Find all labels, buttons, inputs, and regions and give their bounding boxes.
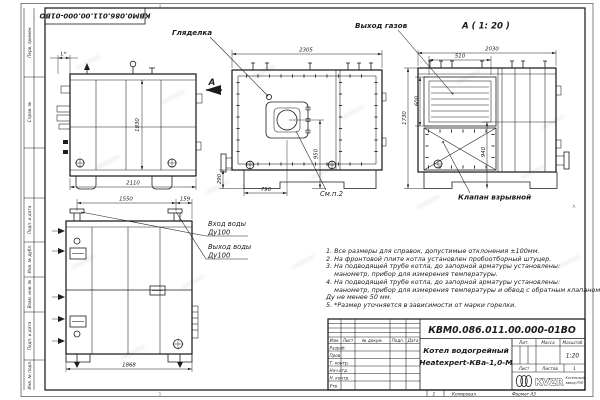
footer-copied: Копировал <box>452 392 476 397</box>
footer-num: 1 <box>433 392 436 397</box>
designation-stamp-text: КВМ0.086.011.00.000-01ВО <box>39 12 150 20</box>
tb-scale-label: Масштаб <box>563 340 583 345</box>
rear-view-body <box>66 221 192 354</box>
tb-product-name-1: Котел водогрейный <box>423 346 509 355</box>
margin-field-inv-podl: Инв. № подл. <box>27 361 32 390</box>
tb-col-data: Дата <box>407 338 419 343</box>
margin-field-vzam-inv: Взам. инв. № <box>27 279 32 308</box>
gas-outlet-label: Выход газов <box>355 21 408 30</box>
water-outlet-stub <box>168 209 182 221</box>
footer-strip: 1 Копировал Формат А3 <box>427 390 536 397</box>
zone-mark-right: А <box>573 204 576 210</box>
tb-sheet-label: Лист <box>518 366 530 371</box>
margin-field-podp-data-2: Подп. и дата <box>27 321 32 350</box>
tb-sheets-label: Листов <box>541 366 558 371</box>
view-a-arrow-label: А <box>208 78 216 88</box>
dim-flue-width: 510 <box>455 54 466 60</box>
footer-format: Формат А3 <box>512 392 536 397</box>
title-block: Изм. Лист № докум. Подп. Дата Разраб. Пр… <box>328 319 586 390</box>
dim-stub-offset: 159 <box>180 197 191 203</box>
tb-row-tkontr: Т. контр. <box>330 361 349 366</box>
tb-col-izm: Изм. <box>330 338 340 343</box>
tb-col-list: Лист <box>342 338 354 343</box>
tb-sheets-value: 1 <box>573 366 576 371</box>
water-inlet-dn: Ду100 <box>207 229 230 237</box>
kvzr-logo-text: KVZR <box>535 378 564 388</box>
dim-front-790: 790 <box>261 187 272 193</box>
kvzr-logo: KVZR Котельный завод РЭП <box>516 376 585 389</box>
kvzr-logo-sub-1: Котельный <box>566 376 586 380</box>
safety-valve-icon <box>130 61 136 67</box>
tb-row-prov: Пров. <box>330 353 342 358</box>
zone-mark-top: 1 <box>159 3 162 9</box>
water-inlet-label: Вход воды <box>208 220 247 228</box>
tb-row-nkontr: Н. контр. <box>330 376 350 381</box>
dim-burner-axis: 950 <box>314 148 320 159</box>
dim-side-height: 1830 <box>135 118 141 132</box>
tb-col-podp: Подп. <box>392 338 405 343</box>
dim-view-a-width: 2030 <box>485 47 499 53</box>
dim-side-length: 2110 <box>126 181 140 187</box>
technical-notes: 1. Все размеры для справок, допустимые о… <box>326 248 584 310</box>
view-side: L* 1830 2110 А <box>50 52 222 191</box>
tb-product-name-2: Heatexpert-КВа-1,0-М <box>419 358 513 367</box>
tb-col-doc: № докум. <box>361 338 383 343</box>
dim-stub-span: 1550 <box>119 197 133 203</box>
water-outlet-label: Выход воды <box>208 243 252 251</box>
dim-flue-height: 600 <box>415 95 421 106</box>
tb-row-razrab: Разраб. <box>330 346 346 351</box>
tb-row-utv: Утв. <box>330 384 339 389</box>
water-outlet-dn: Ду100 <box>207 252 230 260</box>
dim-front-width: 2305 <box>299 48 313 54</box>
anchor-bolt-icon <box>84 63 90 70</box>
margin-field-perv-primen: Перв. примен. <box>27 26 32 57</box>
dim-view-a-height: 1730 <box>402 111 408 125</box>
tb-designation: КВМ0.086.011.00.000-01ВО <box>428 325 576 336</box>
tb-scale-value: 1:20 <box>566 353 580 360</box>
dim-base-height: 290 <box>217 173 223 184</box>
see-item-label: См.п.2 <box>320 190 343 198</box>
view-front: 2305 950 790 290 Гляделка См.п.2 <box>172 28 386 198</box>
drawing-sheet: Перв. примен. Справ. № Подп. и дата Инв.… <box>0 0 600 400</box>
dim-rear-width: 1868 <box>122 363 136 369</box>
view-a: 2030 510 600 1730 940 Выход газов А ( 1:… <box>355 21 569 202</box>
kvzr-logo-sub-2: завод РЭП <box>566 381 584 385</box>
peephole-label: Гляделка <box>172 28 212 37</box>
designation-stamp: КВМ0.086.011.00.000-01ВО <box>39 8 150 24</box>
explosion-valve-label: Клапан взрывной <box>458 193 531 202</box>
tb-lit-label: Лит. <box>518 340 529 345</box>
view-rear: 1550 159 1868 Вход воды Ду100 Выход воды… <box>52 197 252 373</box>
margin-field-podp-data-1: Подп. и дата <box>27 205 32 234</box>
tb-row-nachotd: Нач.отд. <box>330 368 349 373</box>
dim-lower-section: 940 <box>481 146 487 157</box>
dim-burner-length: L* <box>61 52 67 58</box>
side-view-body <box>70 74 196 176</box>
view-a-title: А ( 1: 20 ) <box>461 22 510 32</box>
zone-mark-bottom: 1 <box>159 392 162 398</box>
tb-mass-label: Масса <box>541 340 555 345</box>
margin-field-sprav-no: Справ. № <box>27 101 32 122</box>
margin-field-inv-dubl: Инв. № дубл. <box>27 245 32 274</box>
